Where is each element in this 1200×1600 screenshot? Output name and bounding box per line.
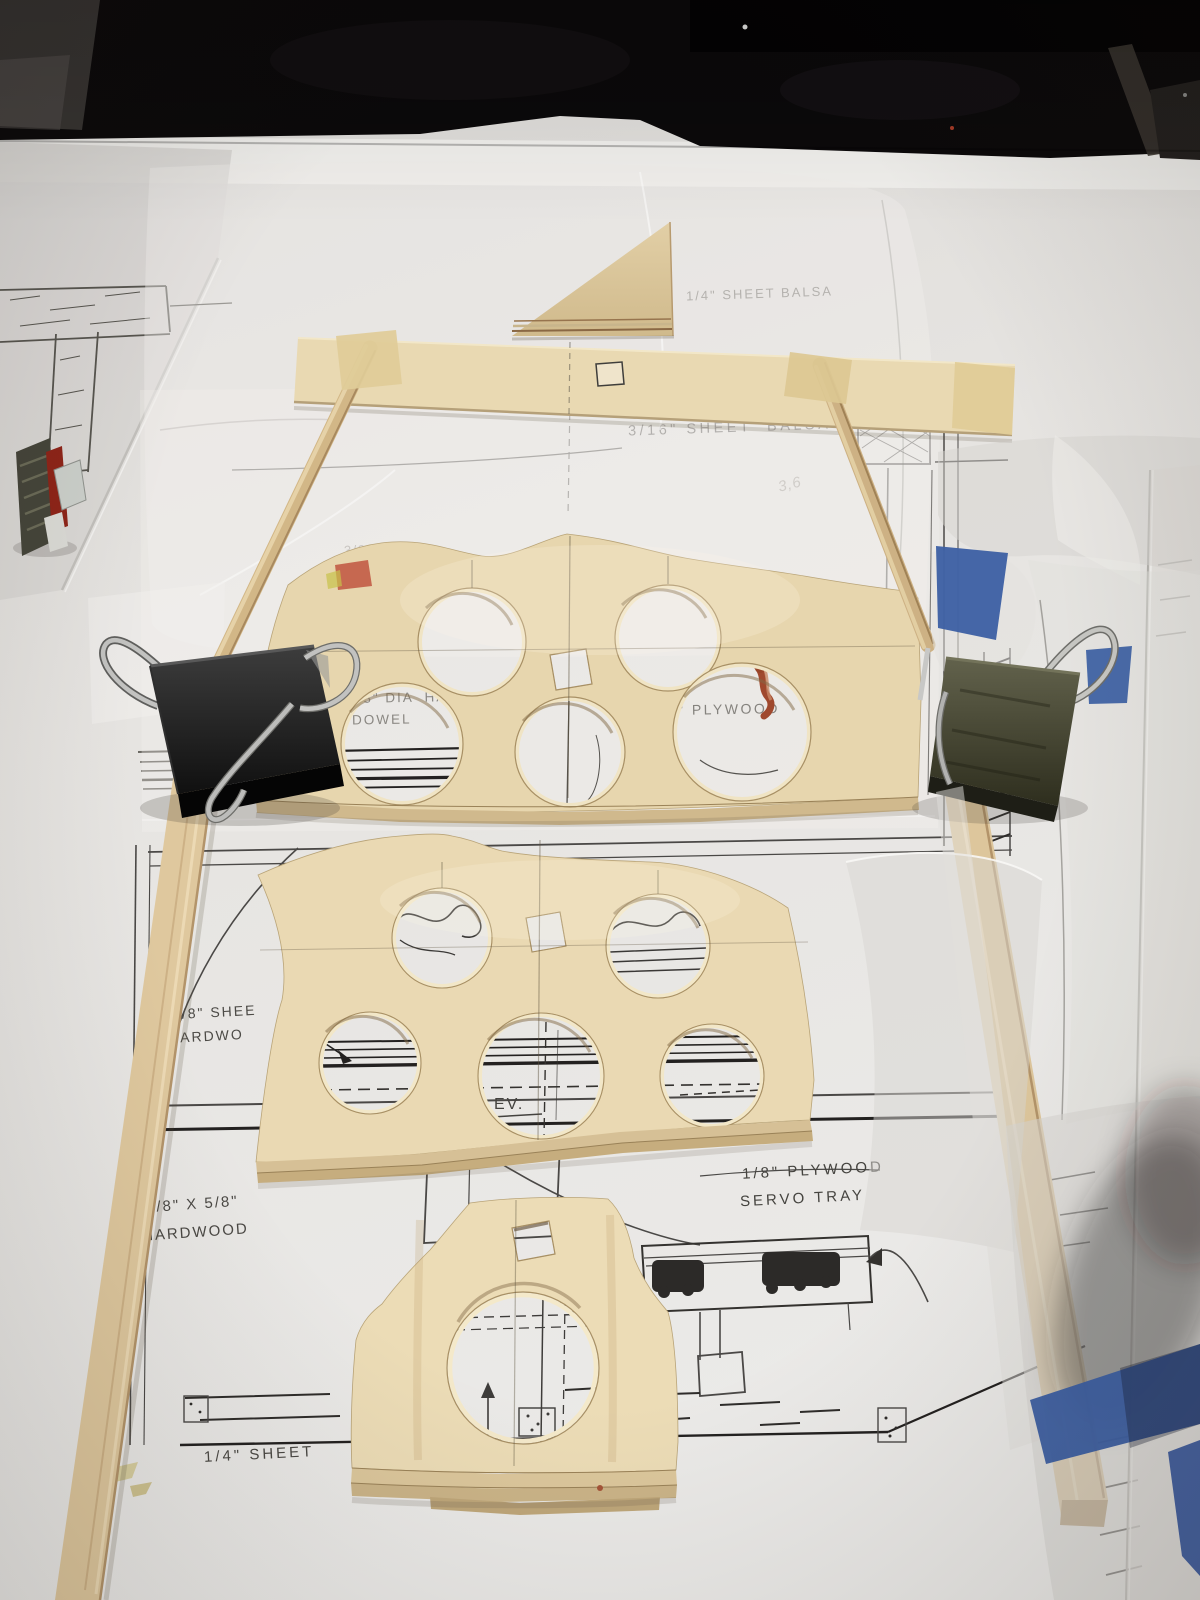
- workbench-photo: 1/4" SHEET BALSA 3/16" SHEET BALSA 3/8" …: [0, 0, 1200, 1600]
- foreground-plastics-layer: [0, 0, 1200, 1600]
